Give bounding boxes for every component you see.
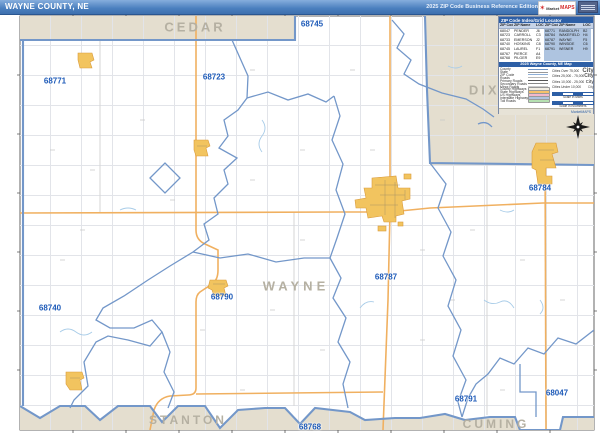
zip-label-68784: 68784 [529,184,551,193]
zip-index-col-header: LOC [535,23,544,28]
legend-footer: MarketMAPS [499,108,593,115]
zip-index-cell: E9 [535,56,544,61]
legend-city-item: Cities 25,000 - 75,000City [552,73,594,79]
legend-item: Toll Roads [500,100,550,103]
zip-index-cell [558,56,582,61]
legend-city-item: Cities 10,000 - 25,000City [552,79,594,85]
zip-index-cell [582,56,591,61]
zip-label-68723: 68723 [203,73,225,82]
zip-index-col-header: ZIP Code [499,23,513,28]
zip-label-68740: 68740 [39,304,61,313]
map-canvas: CEDAR DIXON WAYNE STANTON CUMING 6874568… [0,14,600,436]
legend-scale-bars: Scale in MilesScale in Kilometers [552,90,594,108]
logo-badge [578,1,598,13]
zip-label-68745: 68745 [301,20,323,29]
zip-index-cell: 68768 [499,56,513,61]
county-label-cedar: CEDAR [164,20,225,35]
zip-index-cell: PILGER [513,56,535,61]
zip-label-68768: 68768 [299,423,321,432]
county-label-wayne: WAYNE [263,279,329,294]
logo-market-text: Market [546,6,559,11]
zip-label-68787: 68787 [375,273,397,282]
zip-label-68791: 68791 [455,395,477,404]
edition-label: 2025 ZIP Code Business Reference Edition [426,4,538,10]
legend-city-items: Cities Over 75,000CityCities 25,000 - 75… [552,68,594,108]
marketmaps-logo: ✶ Market MAPS [538,1,576,15]
logo-star-icon: ✶ [539,5,545,12]
zip-index-col-header: ZIP Code [544,23,558,28]
zip-label-68047: 68047 [546,389,568,398]
page: { "title_bar": { "title": "WAYNE COUNTY,… [0,0,600,436]
scale-bar: Scale in Kilometers [552,101,594,108]
county-label-stanton: STANTON [149,413,227,427]
county-label-cuming: CUMING [463,417,530,431]
logo-maps-text: MAPS [560,5,574,11]
zip-label-68771: 68771 [44,77,66,86]
zip-index-col-header: ZIP Name [558,23,582,28]
zip-index-col-header: ZIP Name [513,23,535,28]
title-bar: WAYNE COUNTY, NE 2025 ZIP Code Business … [0,0,600,15]
zip-index-cell [544,56,558,61]
page-title: WAYNE COUNTY, NE [5,2,89,11]
zip-index-legend-box: ZIP Code Index/Grid Locator ZIP CodeZIP … [498,16,594,114]
scale-bar: Scale in Miles [552,92,594,99]
legend-line-items: CountyStateZIP CodeRoadsPrimary RoadsSec… [500,68,550,108]
zip-label-68790: 68790 [211,293,233,302]
zip-index-rows: 68047PENDERJ668771RANDOLPHB268723CARROLL… [499,29,593,61]
zip-index-col-header: LOC [582,23,591,28]
